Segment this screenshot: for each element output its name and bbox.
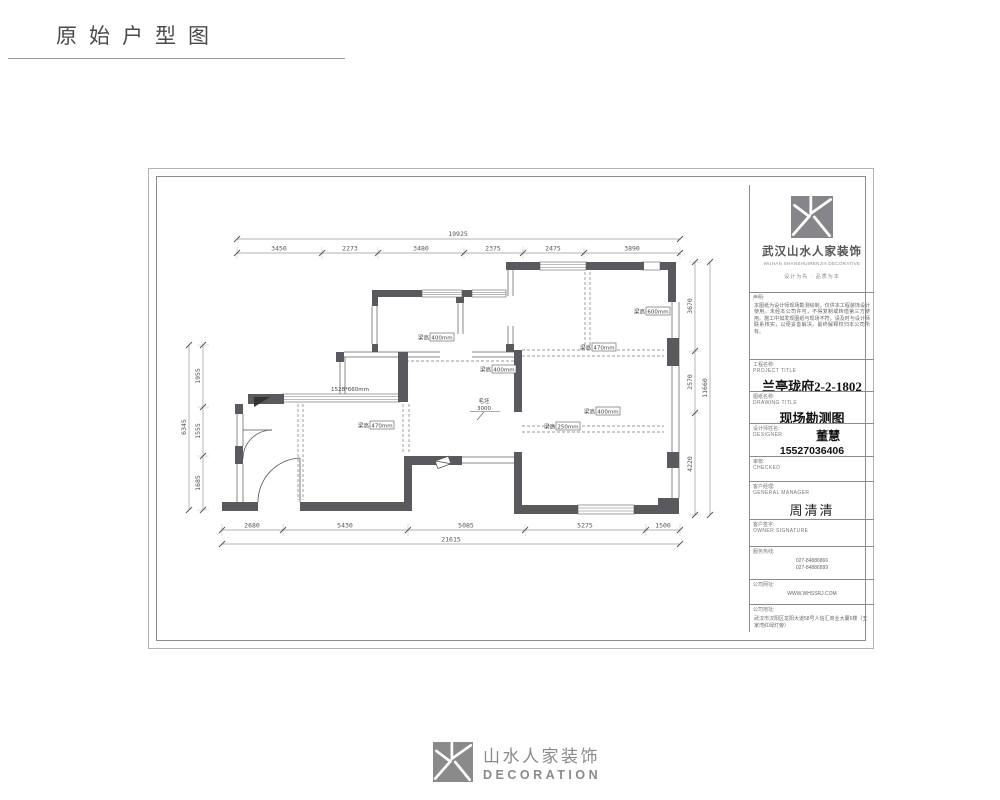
dimension-label: 1555: [194, 423, 202, 439]
beam-prefix: 梁高: [544, 423, 556, 431]
checker-label-en: CHECKED: [753, 465, 874, 471]
dimension-label: 11660: [701, 378, 709, 398]
beam-value: 400mm: [597, 410, 618, 416]
project-title-block: 工程名称: PROJECT TITLE 兰亭珑府2-2-1802: [750, 360, 874, 392]
drawing-title-label: 图纸名称: DRAWING TITLE: [750, 392, 874, 406]
beam-label: 梁高 400mm: [418, 333, 454, 342]
dimension-label: 2680: [244, 522, 260, 530]
beam-dashed-lines: [298, 272, 664, 500]
address-label: 公司地址:: [750, 605, 874, 613]
drawing-label-en: DRAWING TITLE: [753, 400, 874, 406]
plan-notes: 1528*660mm 毛坯 3000: [331, 387, 500, 420]
owner-sign-label: 客户签字: OWNER SIGNATURE: [750, 520, 874, 534]
dimension-label: 3480: [413, 245, 429, 253]
website-label: 公司网址:: [750, 580, 874, 588]
manager-label-cn: 客户经理:: [753, 484, 774, 490]
address-value: 武汉市汉阳区龙阳大道58号人信汇商业大厦6楼（王家湾红绿灯旁）: [750, 616, 874, 629]
designer-label-en: DESIGNER: [753, 432, 782, 438]
dimension-label: 4220: [686, 456, 694, 472]
dimension-label: 3890: [624, 245, 640, 253]
dimension-label: 19925: [448, 230, 468, 238]
website-value: WWW.WHSSRJ.COM: [750, 591, 874, 598]
dimension-label: 3670: [686, 298, 694, 314]
beam-label: 梁高 400mm: [584, 407, 620, 416]
title-underline: [8, 58, 345, 59]
company-name-en: WUHAN SHANSHUIRENJIA DECORATIVE: [764, 261, 861, 266]
doors: [243, 430, 300, 502]
dimension-chain-bottom: 2680 5430 5085 5275 1500 21615: [219, 522, 683, 548]
beam-prefix: 梁高: [634, 308, 646, 316]
structural-walls: [222, 262, 679, 514]
hotline-number-2: 027-84886899: [750, 565, 874, 572]
floor-plan: 梁高 400mm 梁高 470mm 梁高 400mm 梁高 600mm 梁高 4…: [150, 170, 750, 640]
company-logo-icon: [791, 196, 833, 238]
dimension-label: 3450: [271, 245, 287, 253]
dimension-label: 2570: [686, 374, 694, 390]
designer-phone: 15527036406: [750, 445, 874, 457]
beam-label: 梁高 400mm: [480, 365, 516, 374]
manager-name: 周清清: [750, 500, 874, 519]
beam-value: 600mm: [647, 310, 668, 316]
designer-label-cn: 设计师姓名:: [753, 426, 779, 432]
dimension-chain-top: 19925 3450 2273 3480 2375 2475 3890: [234, 230, 683, 259]
beam-label: 梁高 470mm: [580, 343, 616, 352]
manager-label: 客户经理: GENERAL MANAGER: [750, 482, 874, 496]
designer-label: 设计师姓名: DESIGNER: [750, 424, 782, 438]
designer-block: 设计师姓名: DESIGNER 董慧 15527036406: [750, 424, 874, 457]
drawing-title-block: 图纸名称: DRAWING TITLE 现场勘测图: [750, 392, 874, 424]
beam-prefix: 梁高: [358, 422, 370, 430]
dimension-label: 21615: [441, 536, 461, 544]
dimension-label: 2273: [342, 245, 358, 253]
beam-value: 400mm: [493, 368, 514, 374]
beam-value: 250mm: [557, 425, 578, 431]
declaration-label: 声明:: [750, 293, 874, 301]
beam-label: 梁高 600mm: [634, 307, 670, 316]
beam-prefix: 梁高: [418, 334, 430, 342]
beam-value: 400mm: [431, 336, 452, 342]
footer-logo: 山水人家装饰 DECORATION: [433, 742, 601, 782]
company-tagline: 设计为先 · 品质为本: [784, 273, 839, 280]
dimension-chain-right: 3670 2570 4220 11660: [686, 259, 713, 518]
manager-label-en: GENERAL MANAGER: [753, 490, 874, 496]
company-logo-block: 武汉山水人家装饰 WUHAN SHANSHUIRENJIA DECORATIVE…: [750, 185, 874, 293]
beam-value: 470mm: [593, 346, 614, 352]
thin-walls: [237, 270, 679, 502]
declaration-text: 本图纸为设计师现场勘测绘制，仅供本工程装饰设计使用。未经本公司许可，不得复制或转…: [750, 301, 874, 338]
window-size-note: 1528*660mm: [331, 387, 369, 393]
checker-label-cn: 审核:: [753, 459, 764, 465]
beam-prefix: 梁高: [580, 344, 592, 352]
rough-note-line1: 毛坯: [478, 397, 490, 405]
drawing-title-value: 现场勘测图: [750, 408, 874, 424]
owner-label-en: OWNER SIGNATURE: [753, 528, 874, 534]
company-name-cn: 武汉山水人家装饰: [762, 243, 862, 259]
dimension-label: 6345: [180, 419, 188, 435]
project-title-label: 工程名称: PROJECT TITLE: [750, 360, 874, 374]
footer-logo-icon: [433, 742, 473, 782]
beam-prefix: 梁高: [480, 366, 492, 374]
dimension-label: 1955: [194, 368, 202, 384]
owner-sign-block: 客户签字: OWNER SIGNATURE: [750, 520, 874, 547]
page-title: 原始户型图: [56, 20, 221, 50]
hotline-label: 服务热线:: [750, 547, 874, 555]
manager-block: 客户经理: GENERAL MANAGER 周清清: [750, 482, 874, 521]
dimension-label: 2475: [545, 245, 561, 253]
dimension-label: 5085: [458, 522, 474, 530]
dimension-chain-left: 1955 1555 1685 6345: [180, 342, 209, 513]
dimension-label: 1500: [655, 522, 671, 530]
dimension-label: 5275: [577, 522, 593, 530]
rough-note-line2: 3000: [477, 406, 491, 412]
project-label-en: PROJECT TITLE: [753, 368, 874, 374]
beam-label: 梁高 470mm: [358, 421, 394, 430]
dimension-label: 2375: [485, 245, 501, 253]
checker-label: 审核: CHECKED: [750, 457, 874, 471]
beam-value: 470mm: [371, 424, 392, 430]
footer-logo-text: 山水人家装饰 DECORATION: [483, 742, 601, 782]
hotline-block: 服务热线: 027-84886866 027-84886899: [750, 547, 874, 580]
footer-company-cn: 山水人家装饰: [483, 742, 601, 767]
footer-company-en: DECORATION: [483, 768, 601, 782]
project-title-value: 兰亭珑府2-2-1802: [750, 376, 874, 392]
title-block: 武汉山水人家装饰 WUHAN SHANSHUIRENJIA DECORATIVE…: [749, 185, 874, 632]
website-block: 公司网址: WWW.WHSSRJ.COM: [750, 580, 874, 605]
declaration-block: 声明: 本图纸为设计师现场勘测绘制，仅供本工程装饰设计使用。未经本公司许可，不得…: [750, 293, 874, 360]
beam-prefix: 梁高: [584, 408, 596, 416]
address-block: 公司地址: 武汉市汉阳区龙阳大道58号人信汇商业大厦6楼（王家湾红绿灯旁）: [750, 605, 874, 632]
checker-block: 审核: CHECKED: [750, 457, 874, 482]
dimension-label: 1685: [194, 475, 202, 491]
dimension-label: 5430: [337, 522, 353, 530]
beam-label: 梁高 250mm: [544, 422, 580, 431]
